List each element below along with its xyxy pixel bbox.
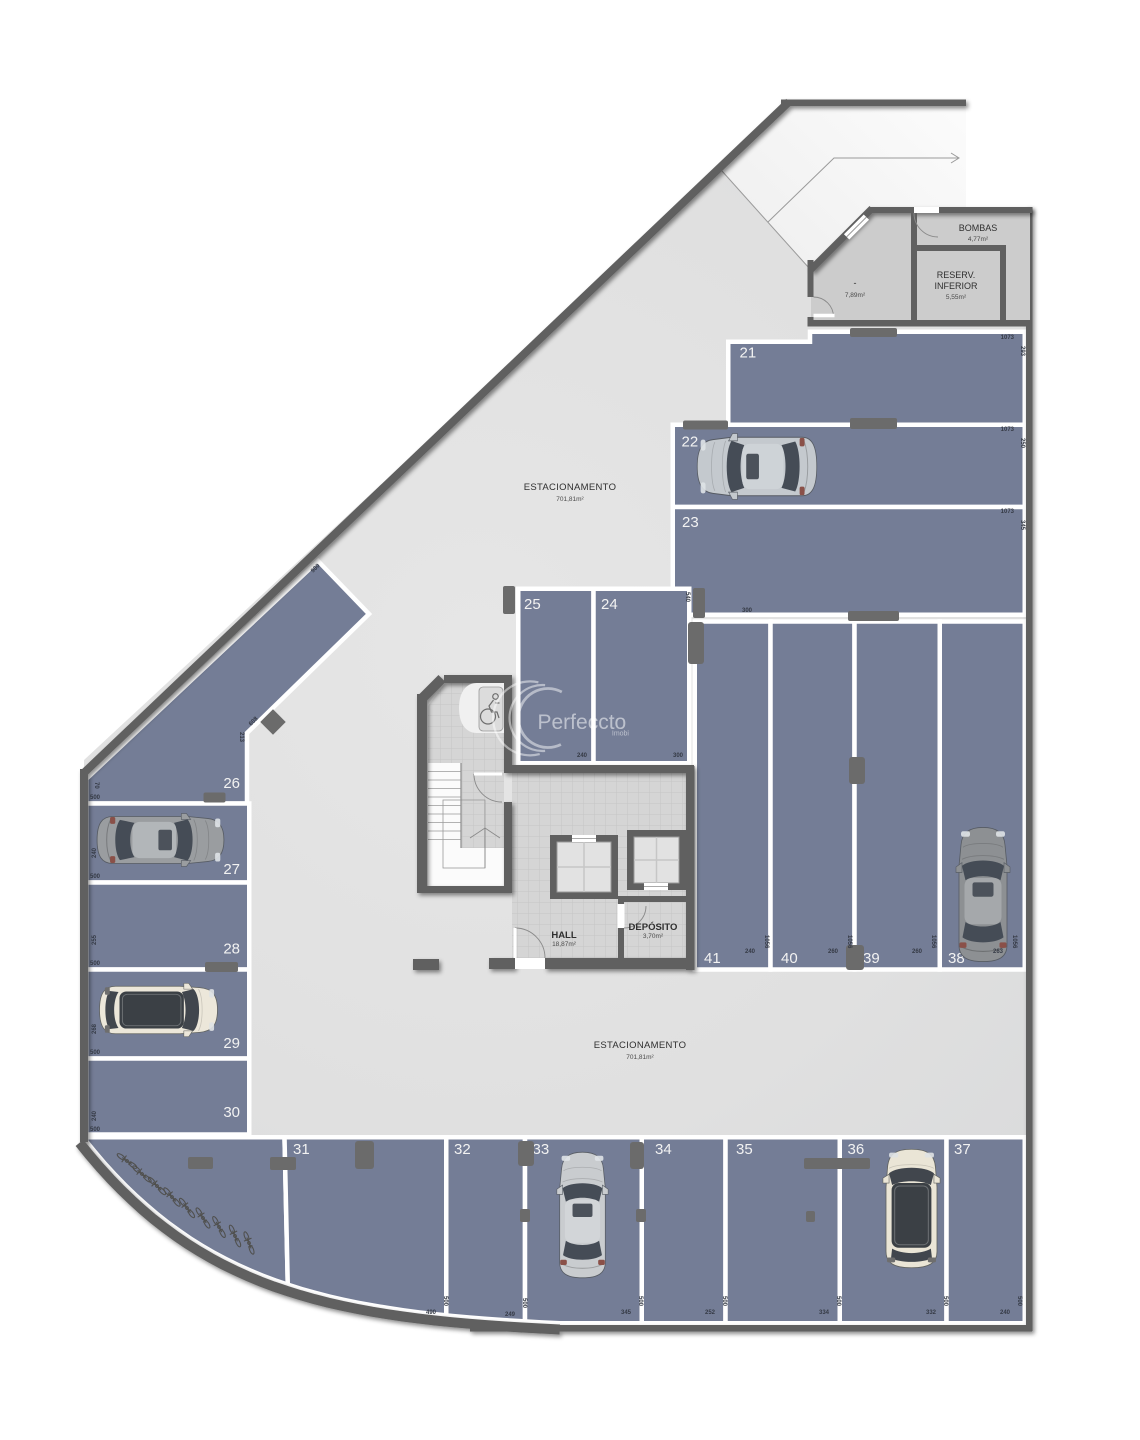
svg-text:701,81m²: 701,81m² bbox=[556, 496, 584, 503]
svg-text:22: 22 bbox=[682, 434, 699, 451]
svg-text:1073: 1073 bbox=[1001, 427, 1015, 433]
svg-text:500: 500 bbox=[90, 795, 101, 801]
svg-text:ESTACIONAMENTO: ESTACIONAMENTO bbox=[524, 482, 617, 493]
svg-text:252: 252 bbox=[705, 1310, 716, 1316]
svg-text:500: 500 bbox=[1016, 1296, 1022, 1307]
svg-text:1073: 1073 bbox=[1001, 509, 1015, 515]
svg-text:5,55m²: 5,55m² bbox=[946, 294, 967, 301]
svg-text:18,87m²: 18,87m² bbox=[552, 941, 577, 948]
svg-text:4,77m²: 4,77m² bbox=[968, 236, 989, 243]
svg-text:490: 490 bbox=[426, 1310, 437, 1316]
svg-text:500: 500 bbox=[90, 961, 101, 967]
svg-text:41: 41 bbox=[704, 950, 721, 967]
svg-text:500: 500 bbox=[90, 1127, 101, 1133]
svg-text:24: 24 bbox=[601, 596, 618, 613]
svg-text:240: 240 bbox=[745, 949, 756, 955]
svg-text:23: 23 bbox=[682, 514, 699, 531]
svg-text:500: 500 bbox=[521, 1298, 527, 1309]
svg-text:28: 28 bbox=[223, 941, 240, 958]
svg-text:500: 500 bbox=[637, 1296, 643, 1307]
svg-text:26: 26 bbox=[223, 775, 240, 792]
svg-text:500: 500 bbox=[90, 1050, 101, 1056]
svg-text:25: 25 bbox=[524, 596, 541, 613]
svg-text:260: 260 bbox=[912, 949, 923, 955]
svg-text:1073: 1073 bbox=[1001, 335, 1015, 341]
svg-text:255: 255 bbox=[92, 934, 98, 945]
svg-text:263: 263 bbox=[993, 949, 1004, 955]
svg-text:INFERIOR: INFERIOR bbox=[934, 281, 978, 291]
svg-text:240: 240 bbox=[92, 1110, 98, 1121]
svg-text:-: - bbox=[854, 278, 857, 288]
svg-text:260: 260 bbox=[828, 949, 839, 955]
svg-text:37: 37 bbox=[954, 1141, 971, 1158]
svg-text:3,70m²: 3,70m² bbox=[643, 933, 664, 940]
svg-text:240: 240 bbox=[1000, 1310, 1011, 1316]
svg-text:500: 500 bbox=[90, 874, 101, 880]
svg-text:500: 500 bbox=[442, 1296, 448, 1307]
svg-text:1056: 1056 bbox=[930, 935, 936, 949]
svg-text:29: 29 bbox=[223, 1035, 240, 1052]
svg-text:249: 249 bbox=[505, 1312, 516, 1318]
svg-text:33: 33 bbox=[533, 1141, 550, 1158]
svg-text:1056: 1056 bbox=[1011, 935, 1017, 949]
svg-text:300: 300 bbox=[742, 608, 753, 614]
svg-text:30: 30 bbox=[223, 1104, 240, 1121]
svg-text:268: 268 bbox=[92, 1023, 98, 1034]
svg-text:40: 40 bbox=[781, 950, 798, 967]
svg-text:7,89m²: 7,89m² bbox=[845, 292, 866, 299]
svg-text:250: 250 bbox=[1019, 438, 1025, 449]
svg-text:1056: 1056 bbox=[763, 935, 769, 949]
svg-text:240: 240 bbox=[92, 847, 98, 858]
svg-text:1056: 1056 bbox=[846, 935, 852, 949]
svg-text:Imobi: Imobi bbox=[612, 731, 630, 738]
svg-text:RESERV.: RESERV. bbox=[937, 270, 976, 280]
svg-text:345: 345 bbox=[1019, 520, 1025, 531]
svg-text:293: 293 bbox=[1019, 346, 1025, 357]
svg-text:345: 345 bbox=[621, 1310, 632, 1316]
svg-text:HALL: HALL bbox=[551, 930, 577, 941]
svg-text:70: 70 bbox=[93, 782, 99, 789]
svg-text:DEPÓSITO: DEPÓSITO bbox=[629, 921, 678, 933]
svg-text:332: 332 bbox=[926, 1310, 937, 1316]
svg-text:36: 36 bbox=[848, 1141, 865, 1158]
svg-text:500: 500 bbox=[835, 1296, 841, 1307]
svg-text:39: 39 bbox=[863, 950, 880, 967]
svg-text:500: 500 bbox=[721, 1296, 727, 1307]
svg-text:34: 34 bbox=[655, 1141, 672, 1158]
svg-text:701,81m²: 701,81m² bbox=[626, 1054, 654, 1061]
svg-text:500: 500 bbox=[942, 1296, 948, 1307]
svg-text:334: 334 bbox=[819, 1310, 830, 1316]
svg-text:213: 213 bbox=[238, 732, 244, 743]
svg-text:540: 540 bbox=[684, 592, 690, 603]
svg-text:240: 240 bbox=[577, 753, 588, 759]
svg-text:300: 300 bbox=[673, 753, 684, 759]
svg-text:BOMBAS: BOMBAS bbox=[959, 223, 998, 233]
svg-text:21: 21 bbox=[740, 345, 757, 362]
svg-text:ESTACIONAMENTO: ESTACIONAMENTO bbox=[594, 1040, 687, 1051]
svg-text:27: 27 bbox=[223, 861, 240, 878]
svg-text:35: 35 bbox=[736, 1141, 753, 1158]
svg-text:31: 31 bbox=[293, 1141, 310, 1158]
svg-text:32: 32 bbox=[454, 1141, 471, 1158]
